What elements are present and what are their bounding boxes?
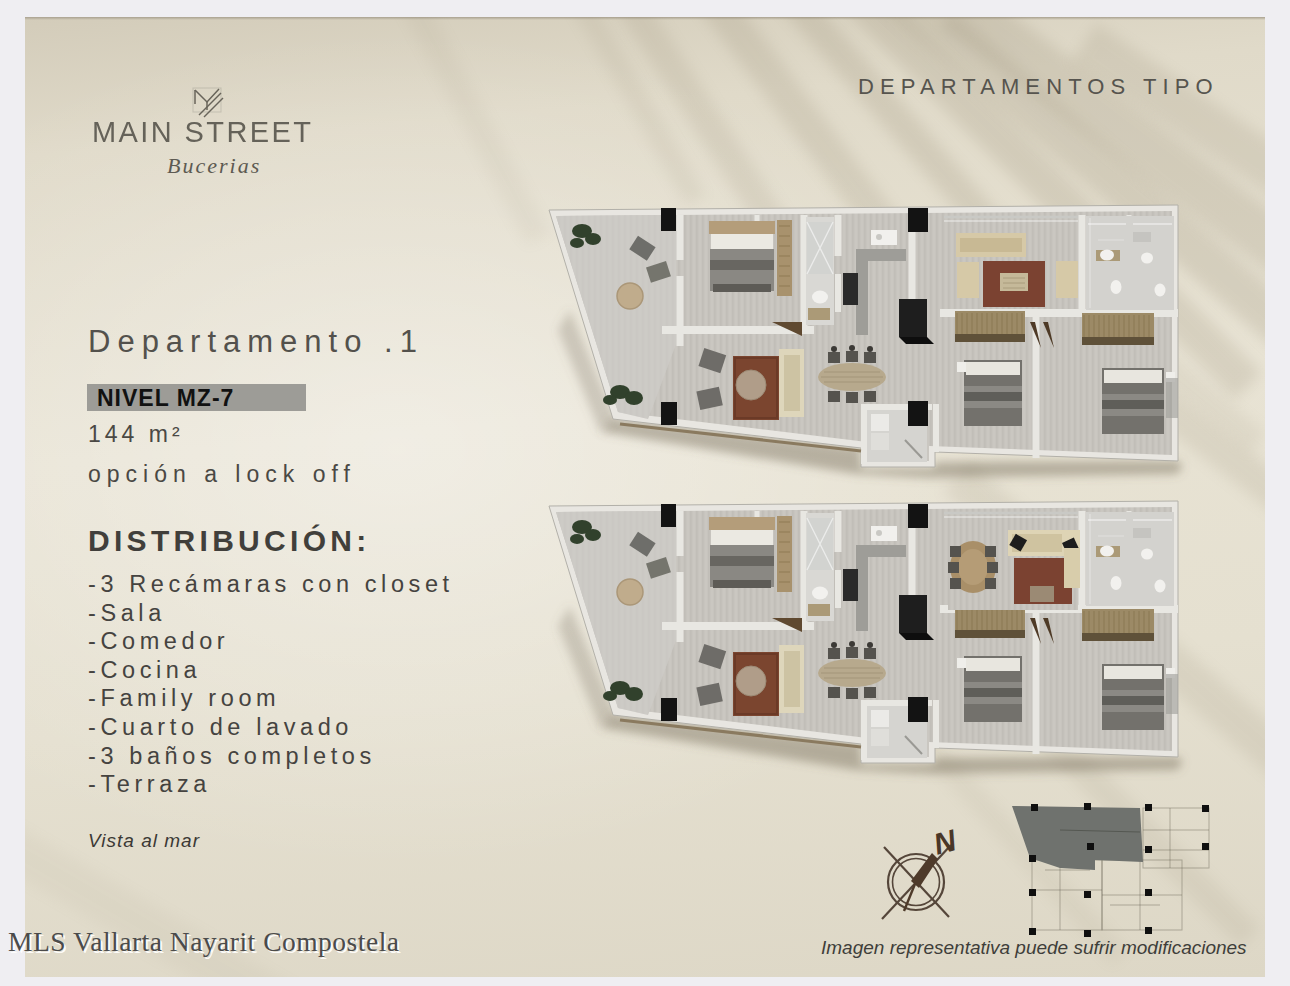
svg-text:N: N — [930, 823, 961, 861]
